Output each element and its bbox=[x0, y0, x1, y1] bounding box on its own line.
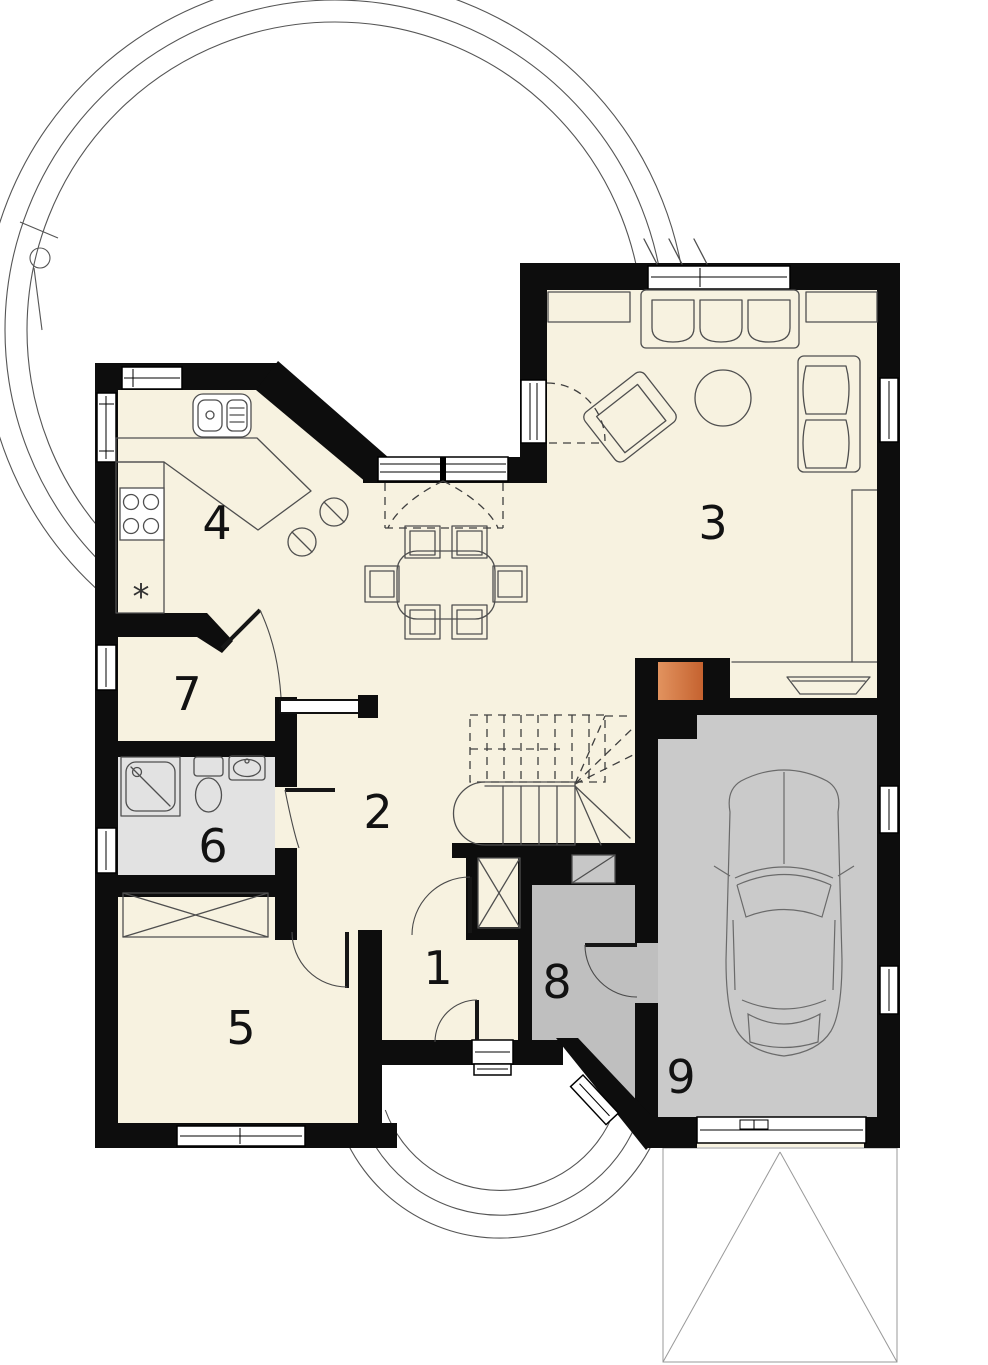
kitchen-symbol: * bbox=[133, 577, 150, 617]
window bbox=[880, 966, 898, 1014]
chimney bbox=[658, 662, 703, 700]
bathroom-floor bbox=[118, 743, 275, 897]
gate-tick bbox=[20, 222, 58, 238]
garage-apron bbox=[663, 1148, 897, 1362]
room-number-8: 8 bbox=[542, 955, 571, 1009]
floor-plan-drawing: * bbox=[0, 0, 988, 1365]
vent-shaft-icon bbox=[572, 855, 615, 883]
stove-icon bbox=[120, 488, 164, 540]
terrace-door bbox=[521, 380, 546, 443]
room-number-9: 9 bbox=[666, 1050, 695, 1104]
room-number-6: 6 bbox=[198, 819, 227, 873]
room-number-4: 4 bbox=[202, 496, 231, 550]
room-number-1: 1 bbox=[423, 941, 452, 995]
window bbox=[648, 266, 790, 289]
room-number-2: 2 bbox=[363, 785, 392, 839]
garage-door bbox=[697, 1117, 866, 1143]
window bbox=[97, 393, 116, 462]
room-number-3: 3 bbox=[698, 496, 727, 550]
floor-plan-canvas: * bbox=[0, 0, 988, 1365]
window bbox=[880, 378, 898, 442]
window bbox=[177, 1126, 305, 1146]
front-door bbox=[472, 1040, 513, 1075]
room-number-5: 5 bbox=[226, 1001, 255, 1055]
french-door bbox=[378, 457, 508, 481]
room-number-7: 7 bbox=[172, 667, 201, 721]
window bbox=[122, 367, 182, 389]
window bbox=[97, 828, 116, 873]
window bbox=[97, 645, 116, 690]
window bbox=[880, 786, 898, 833]
kitchen-sink bbox=[193, 394, 251, 437]
gate-post-icon bbox=[30, 248, 50, 268]
